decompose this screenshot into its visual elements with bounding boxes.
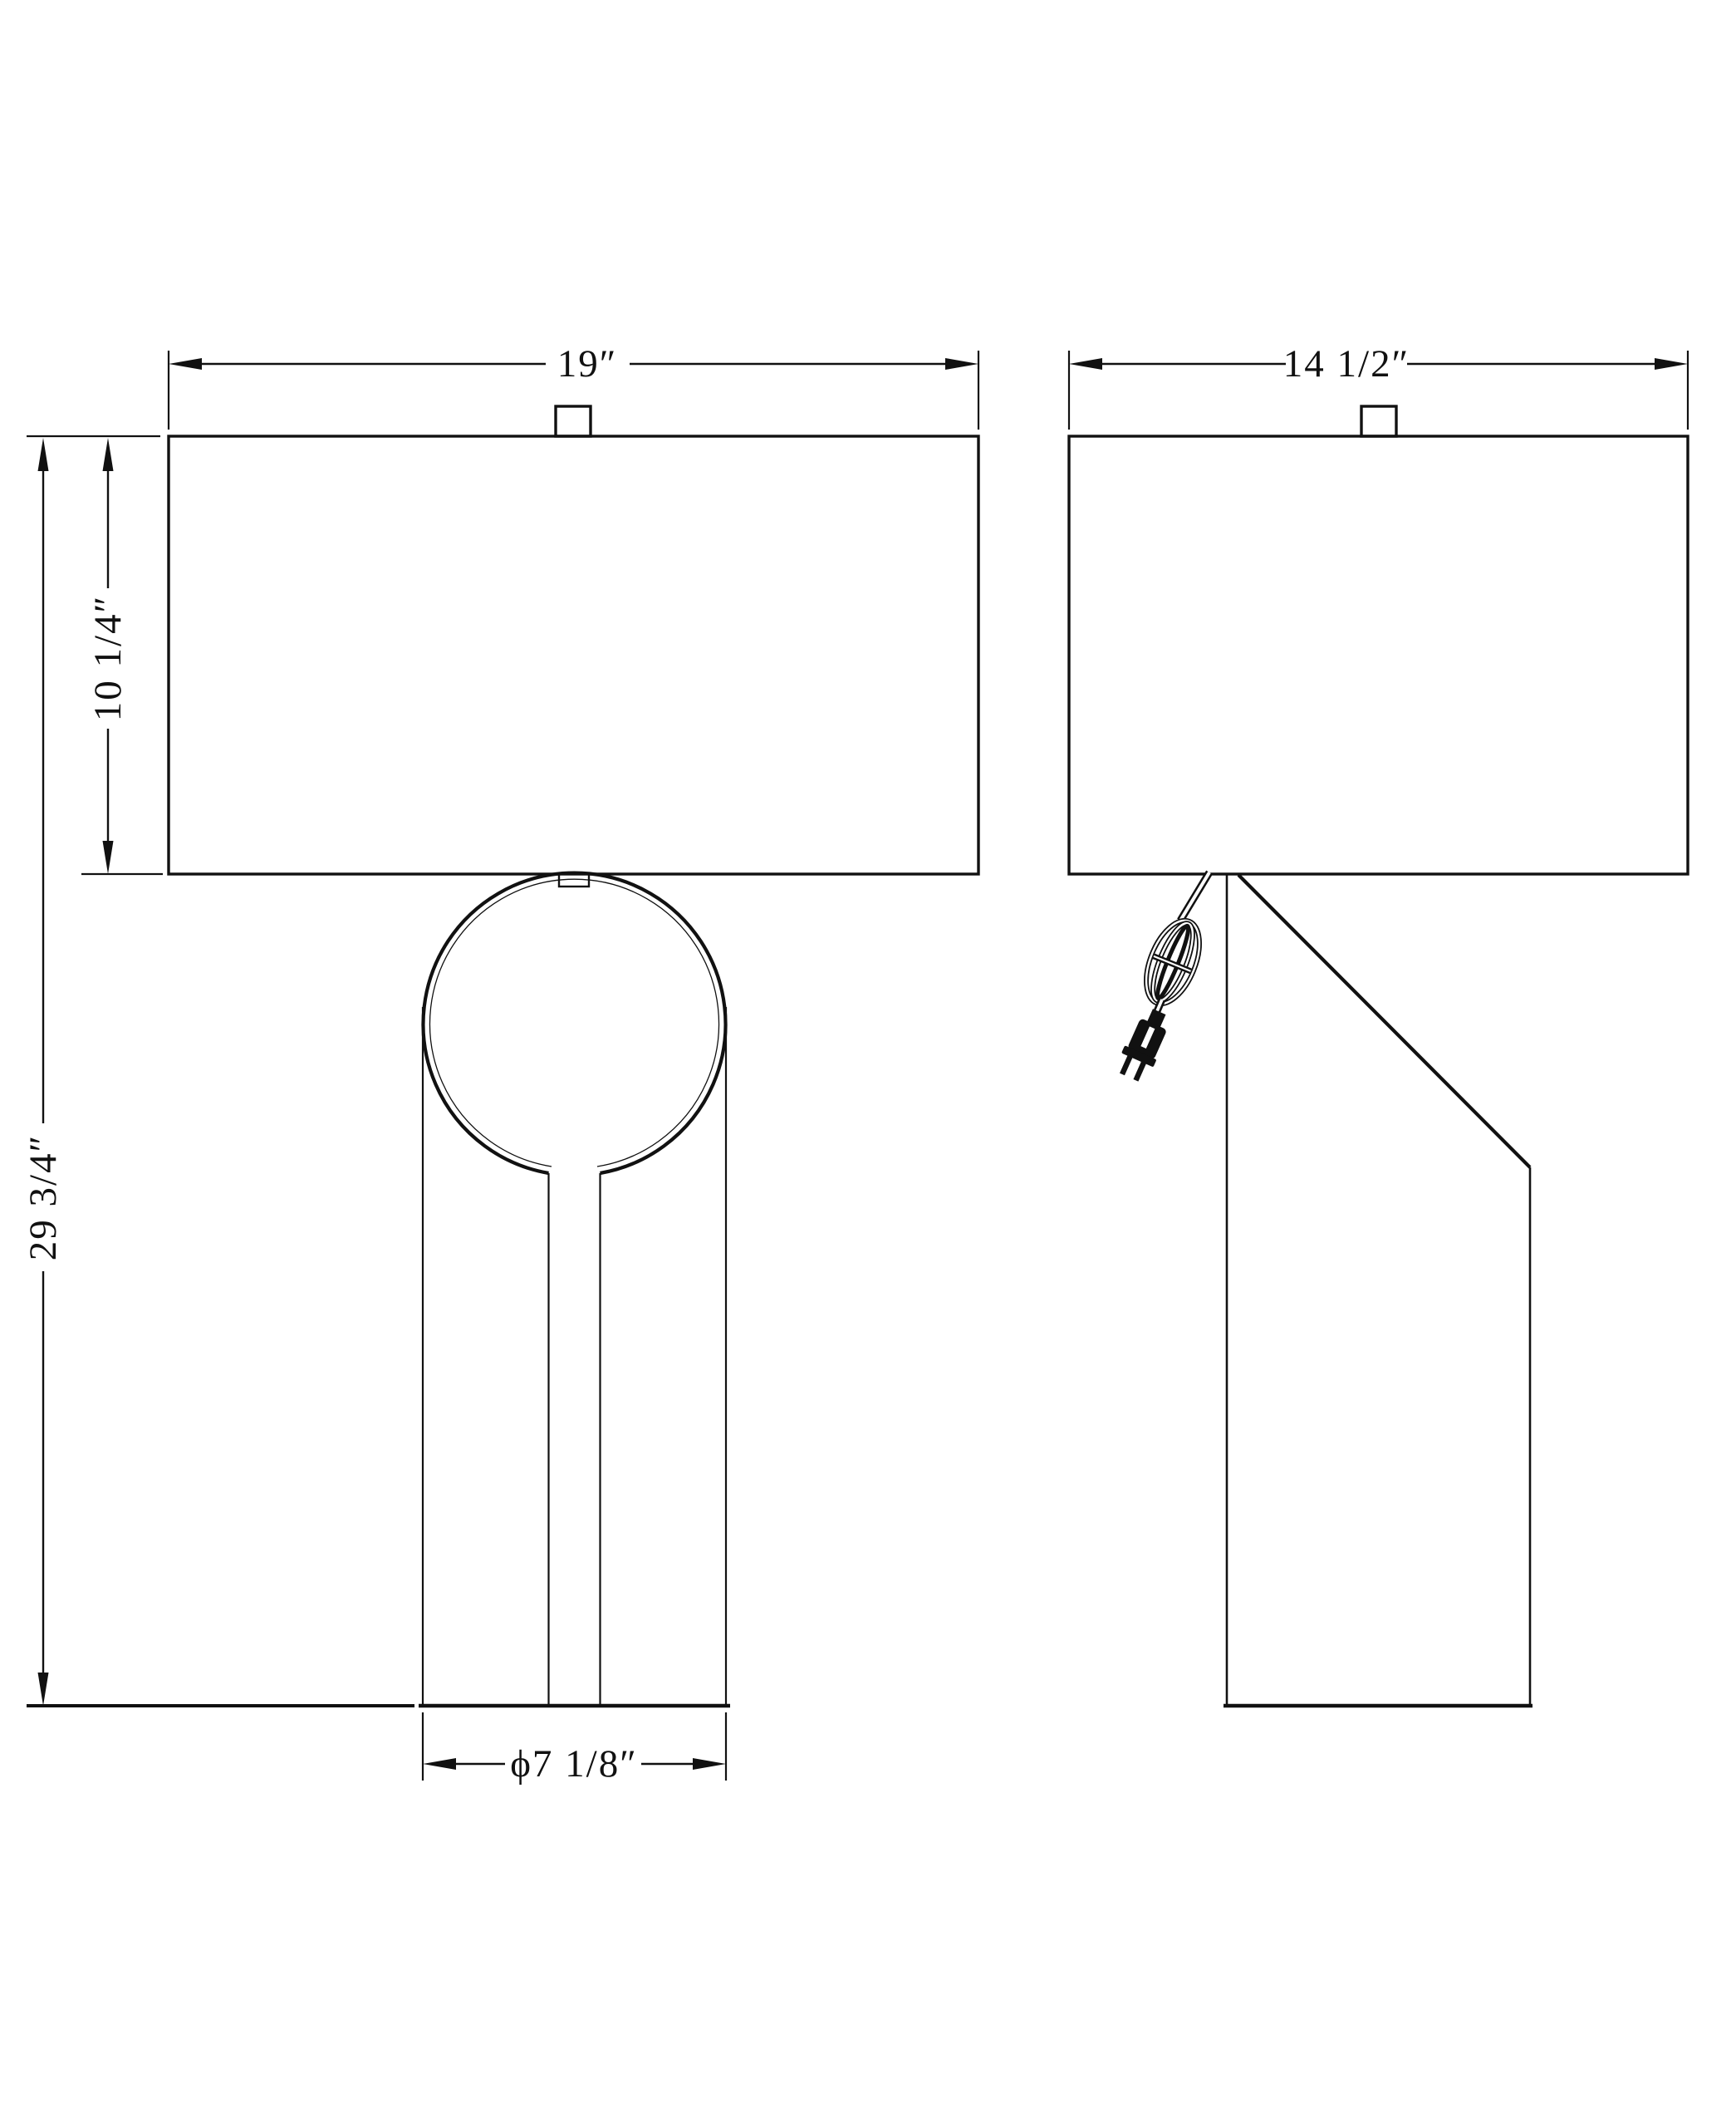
arrowhead-up-icon xyxy=(103,438,114,471)
front-disc-inner-rim xyxy=(430,879,719,1167)
front-disc-outline xyxy=(424,873,726,1173)
arrowhead-left-icon xyxy=(423,1758,456,1770)
front-finial xyxy=(556,406,591,436)
base-diameter-dimension: ϕ7 1/8″ xyxy=(423,1712,726,1786)
base-diameter-label: ϕ7 1/8″ xyxy=(510,1742,638,1786)
side-view: 14 1/2″ xyxy=(1069,342,1688,1706)
front-shade-width-dimension: 19″ xyxy=(169,342,978,430)
side-shade-outline xyxy=(1069,436,1688,874)
arrowhead-right-icon xyxy=(945,358,978,370)
front-shade-width-label: 19″ xyxy=(557,342,618,386)
plug-prong xyxy=(1120,1054,1133,1075)
front-view: 19″ 10 1/4″ xyxy=(22,342,978,1786)
overall-height-dimension: 29 3/4″ xyxy=(22,438,65,1706)
drawing-sheet: 19″ 10 1/4″ xyxy=(0,0,1736,2127)
lamp-dimension-drawing: 19″ 10 1/4″ xyxy=(0,0,1736,2127)
power-cord xyxy=(1114,872,1210,1084)
shade-height-dimension: 10 1/4″ xyxy=(86,438,130,874)
side-finial xyxy=(1361,406,1396,436)
front-shade-outline xyxy=(169,436,978,874)
side-shade-width-label: 14 1/2″ xyxy=(1283,342,1410,386)
plug-icon xyxy=(1114,1005,1175,1085)
arrowhead-left-icon xyxy=(169,358,202,370)
arrowhead-up-icon xyxy=(38,438,49,471)
overall-height-label: 29 3/4″ xyxy=(22,1134,65,1260)
shade-height-label: 10 1/4″ xyxy=(86,595,130,721)
arrowhead-left-icon xyxy=(1069,358,1102,370)
arrowhead-right-icon xyxy=(693,1758,726,1770)
side-shade-width-dimension: 14 1/2″ xyxy=(1069,342,1688,430)
arrowhead-right-icon xyxy=(1655,358,1688,370)
side-body-slant-edge xyxy=(1238,875,1530,1167)
cord-upper-core xyxy=(1180,872,1209,921)
cord-coil xyxy=(1135,913,1210,1012)
plug-prong xyxy=(1133,1060,1146,1081)
front-socket-neck xyxy=(559,874,589,887)
arrowhead-down-icon xyxy=(103,841,114,874)
arrowhead-down-icon xyxy=(38,1673,49,1706)
